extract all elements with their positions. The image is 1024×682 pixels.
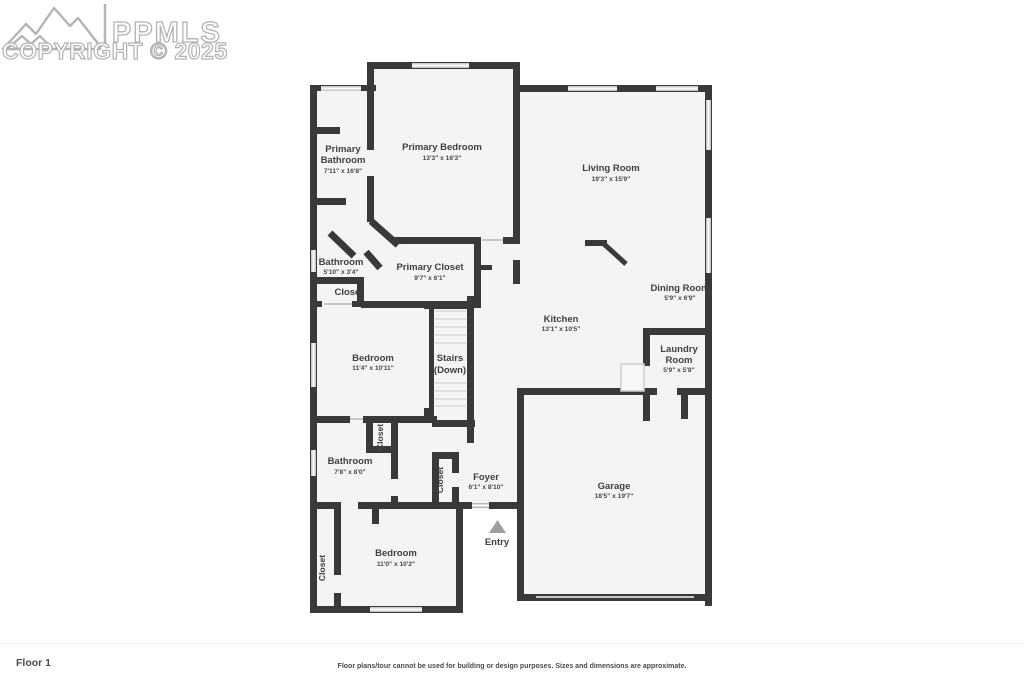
room-name-closet-mid: Closet (375, 424, 385, 450)
room-dims-primary-bedroom: 13'3" x 16'3" (423, 155, 462, 162)
room-name-primary-bathroom: Primary (325, 144, 361, 155)
room-name-primary-bedroom: Primary Bedroom (402, 142, 482, 153)
room-name-stairs: Stairs (437, 353, 463, 364)
room-name-bedroom-bottom: Bedroom (375, 548, 417, 559)
room-name-primary-closet: Primary Closet (396, 262, 464, 273)
room-name-bedroom-middle: Bedroom (352, 353, 394, 364)
room-name-closet-foyer: Closet (435, 467, 445, 493)
room-name-dining-room: Dining Room (650, 283, 709, 294)
room-dims-bedroom-middle: 11'4" x 10'11" (352, 365, 394, 372)
room-dims-bedroom-bottom: 11'0" x 10'2" (377, 561, 415, 568)
footer: Floor 1 Floor plans/tour cannot be used … (0, 644, 1024, 671)
room-name-living-room: Living Room (582, 163, 640, 174)
ppmls-logo: PPMLS COPYRIGHT © 2025 (2, 4, 228, 64)
entry-arrow-icon (489, 520, 506, 533)
room-dims-kitchen: 13'1" x 10'5" (542, 326, 581, 333)
room-dims-dining-room: 5'9" x 6'9" (664, 295, 695, 302)
room-dims-garage: 18'5" x 19'7" (595, 493, 634, 500)
room-dims-living-room: 19'3" x 15'9" (592, 176, 631, 183)
room-dims-primary-bathroom: 7'11" x 16'8" (324, 168, 362, 175)
floor-label: Floor 1 (16, 657, 51, 669)
room-dims-laundry: 5'9" x 5'8" (663, 367, 694, 374)
room-name-stairs-2: (Down) (434, 365, 466, 376)
room-name-closet-bottom: Closet (317, 555, 327, 581)
room-dims-foyer: 6'1" x 8'10" (468, 484, 503, 491)
room-dims-bathroom: 7'8" x 8'0" (334, 469, 365, 476)
room-dims-bathroom-small: 5'10" x 3'4" (323, 269, 358, 276)
laundry-door-panel (621, 364, 644, 391)
room-name-kitchen: Kitchen (544, 314, 579, 325)
room-name-laundry: Laundry (660, 344, 698, 355)
entry-label: Entry (485, 537, 510, 548)
room-name-bathroom-small: Bathroom (319, 257, 364, 268)
floor-plan-canvas: Primary Bathroom 7'11" x 16'8" Primary B… (0, 0, 1024, 682)
room-name-laundry-2: Room (666, 355, 693, 366)
logo-copyright-text: COPYRIGHT © 2025 (2, 38, 228, 64)
room-name-garage: Garage (598, 481, 631, 492)
disclaimer-text: Floor plans/tour cannot be used for buil… (338, 663, 687, 670)
room-name-closet-hall: Closet (334, 287, 364, 298)
room-name-primary-bathroom-2: Bathroom (321, 155, 366, 166)
room-name-bathroom: Bathroom (328, 456, 373, 467)
room-name-foyer: Foyer (473, 472, 499, 483)
room-dims-primary-closet: 9'7" x 6'1" (414, 275, 445, 282)
